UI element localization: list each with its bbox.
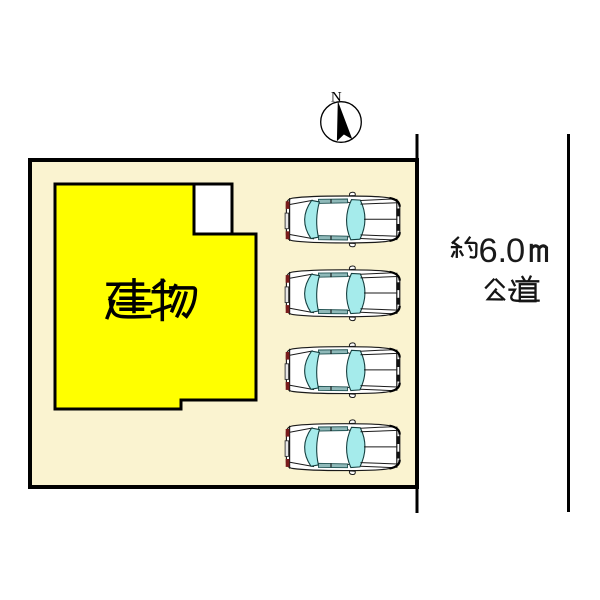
svg-text:0: 0 (506, 232, 525, 270)
svg-text:6: 6 (479, 232, 498, 270)
svg-text:N: N (331, 90, 342, 106)
